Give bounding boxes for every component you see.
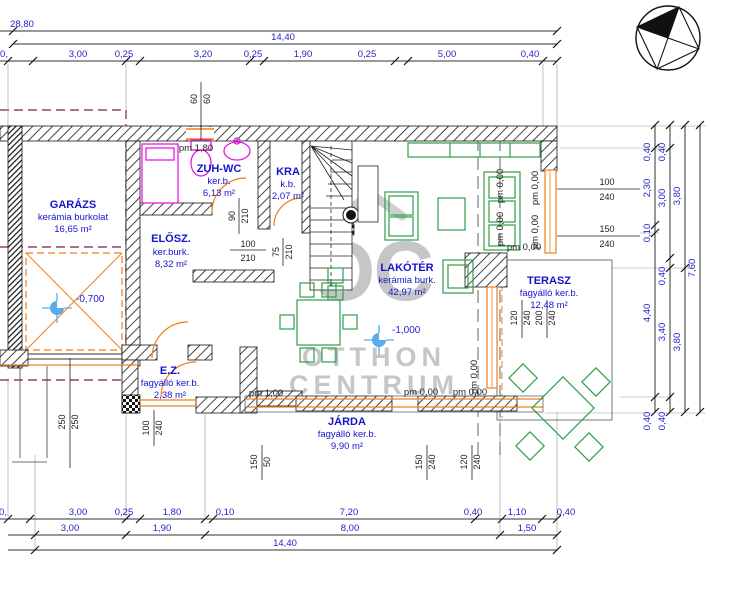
svg-text:42,97 m²: 42,97 m²: [388, 287, 426, 298]
wall-garage-south-left: [0, 350, 28, 366]
svg-text:240: 240: [547, 310, 557, 325]
svg-text:fagyálló ker.b.: fagyálló ker.b.: [318, 429, 377, 440]
svg-text:8,32 m²: 8,32 m²: [155, 259, 187, 270]
svg-text:1,90: 1,90: [153, 523, 172, 534]
room-label-elosz: ELŐSZ. ker.burk. 8,32 m²: [151, 232, 191, 270]
svg-text:0,40: 0,40: [657, 412, 668, 431]
dim-top-row: 0, 3,00 0,25 3,20 0,25 1,90 0,25 5,00 0,…: [0, 49, 539, 60]
room-label-zuhwc: ZUH-WC ker.b. 6,13 m²: [197, 163, 242, 199]
svg-text:60: 60: [202, 94, 212, 104]
svg-text:100: 100: [141, 420, 151, 435]
svg-text:3,80: 3,80: [672, 187, 683, 206]
wall-garage-divider: [126, 141, 140, 353]
wall-bath-east: [258, 141, 270, 229]
svg-text:9,90 m²: 9,90 m²: [331, 441, 363, 452]
svg-text:240: 240: [599, 192, 614, 202]
svg-text:3,00: 3,00: [657, 189, 668, 208]
svg-text:50: 50: [262, 457, 272, 467]
svg-text:12,48 m²: 12,48 m²: [530, 300, 568, 311]
svg-text:pm 0,00: pm 0,00: [469, 360, 480, 394]
svg-text:150: 150: [414, 454, 424, 469]
svg-text:GARÁZS: GARÁZS: [50, 198, 96, 211]
patio-chair: [516, 432, 544, 460]
room-label-ez: E.Z. fagyálló ker.b. 2,38 m²: [141, 365, 200, 401]
wall-bath-south: [140, 203, 212, 215]
room-label-kra: KRA k.b. 2,07 m²: [272, 166, 304, 202]
svg-text:150: 150: [599, 224, 614, 234]
stove-icon: [346, 210, 356, 220]
wall-north: [0, 126, 557, 141]
svg-text:-0,700: -0,700: [76, 294, 105, 305]
svg-text:KRA: KRA: [276, 166, 300, 178]
watermark-otthon: OTTHON: [302, 342, 446, 372]
svg-text:3,80: 3,80: [672, 333, 683, 352]
compass-icon: [636, 6, 700, 70]
sidewalk-slab-1: [296, 396, 392, 411]
wall-entry-south: [196, 397, 240, 413]
dim-top-building: 14,40: [271, 32, 295, 43]
svg-text:120: 120: [509, 310, 519, 325]
svg-text:1,90: 1,90: [294, 49, 313, 60]
wardrobe: [358, 166, 378, 222]
svg-text:pm 0,00: pm 0,00: [495, 212, 506, 246]
patio-chair: [509, 364, 537, 392]
shower-icon: [142, 144, 178, 203]
svg-text:pm 0,00: pm 0,00: [404, 387, 438, 398]
svg-text:0,40: 0,40: [521, 49, 540, 60]
svg-text:5,00: 5,00: [438, 49, 457, 60]
svg-text:0,25: 0,25: [358, 49, 377, 60]
svg-text:LAKÓTÉR: LAKÓTÉR: [380, 261, 433, 274]
svg-text:3,00: 3,00: [69, 49, 88, 60]
svg-text:240: 240: [472, 454, 482, 469]
svg-text:200: 200: [534, 310, 544, 325]
wall-pantry-east: [302, 141, 310, 233]
svg-text:7,20: 7,20: [340, 507, 359, 518]
svg-text:fagyálló ker.b.: fagyálló ker.b.: [141, 378, 200, 389]
kitchen-counter: [408, 143, 540, 157]
svg-text:kerámia burkolat: kerámia burkolat: [38, 212, 109, 223]
window-east-upper: [545, 170, 556, 253]
dim-bottom-row1: 0, 3,00 0,25 1,80 0,10 7,20 0,40 1,10 0,…: [0, 507, 575, 518]
wall-ne-corner: [541, 141, 557, 171]
wall-west-boundary: [8, 126, 22, 368]
svg-text:100: 100: [240, 239, 255, 249]
svg-text:240: 240: [522, 310, 532, 325]
svg-text:240: 240: [599, 239, 614, 249]
sidewalk-slab-2: [418, 396, 517, 411]
pier-entry: [122, 395, 140, 413]
svg-text:2,07 m²: 2,07 m²: [272, 191, 304, 202]
svg-text:90: 90: [227, 211, 237, 221]
svg-text:pm 0,00: pm 0,00: [530, 171, 541, 205]
svg-text:0,40: 0,40: [657, 267, 668, 286]
svg-text:16,65 m²: 16,65 m²: [54, 224, 92, 235]
svg-text:0,40: 0,40: [642, 143, 653, 162]
level-marker-garage: -0,700: [42, 293, 105, 323]
svg-text:2,30: 2,30: [642, 179, 653, 198]
svg-text:0,10: 0,10: [642, 224, 653, 243]
room-label-garazs: GARÁZS kerámia burkolat 16,65 m²: [38, 198, 109, 235]
svg-text:pm 0,00: pm 0,00: [495, 169, 506, 203]
sink-icon: [224, 142, 250, 160]
dim-bottom-row2: 3,00 1,90 8,00 1,50: [61, 523, 537, 534]
svg-text:0,40: 0,40: [464, 507, 483, 518]
svg-text:240: 240: [427, 454, 437, 469]
svg-text:pm 0,00: pm 0,00: [507, 242, 541, 253]
svg-text:0,40: 0,40: [557, 507, 576, 518]
svg-text:1,80: 1,80: [163, 507, 182, 518]
svg-text:210: 210: [240, 253, 255, 263]
svg-text:150: 150: [249, 454, 259, 469]
svg-text:kerámia burk.: kerámia burk.: [378, 275, 436, 286]
svg-text:0,40: 0,40: [657, 143, 668, 162]
svg-text:3,00: 3,00: [69, 507, 88, 518]
garage-door-leaf: [28, 354, 122, 359]
dining-chair: [280, 315, 294, 329]
svg-text:0,25: 0,25: [244, 49, 263, 60]
svg-text:0,10: 0,10: [216, 507, 235, 518]
svg-text:75: 75: [271, 247, 281, 257]
svg-text:120: 120: [459, 454, 469, 469]
wall-hall-living: [193, 270, 274, 282]
parking-space-marker: [26, 253, 122, 350]
dim-bottom-total: 14,40: [273, 538, 297, 549]
door-arc-pantry: [274, 198, 302, 226]
svg-text:250: 250: [70, 414, 80, 429]
svg-text:ker.b.: ker.b.: [207, 176, 230, 187]
svg-text:0,25: 0,25: [115, 49, 134, 60]
room-label-terasz: TERASZ fagyálló ker.b. 12,48 m²: [520, 275, 579, 311]
svg-text:1,50: 1,50: [518, 523, 537, 534]
svg-text:0,40: 0,40: [642, 412, 653, 431]
svg-text:-1,000: -1,000: [392, 325, 421, 336]
svg-text:2,38 m²: 2,38 m²: [154, 390, 186, 401]
svg-text:4,40: 4,40: [642, 304, 653, 323]
svg-text:3,20: 3,20: [194, 49, 213, 60]
wall-hall-south-right: [188, 345, 212, 360]
patio-chair: [582, 368, 610, 396]
floorplan-canvas: OC OTTHON CENTRUM: [0, 0, 742, 597]
patio-chair: [575, 433, 603, 461]
svg-text:0,: 0,: [0, 507, 7, 518]
floorplan-drawing: OC OTTHON CENTRUM: [0, 0, 742, 597]
svg-text:3,40: 3,40: [657, 323, 668, 342]
room-label-jarda: JÁRDA fagyálló ker.b. 9,90 m²: [318, 415, 377, 452]
svg-text:ELŐSZ.: ELŐSZ.: [151, 232, 191, 245]
svg-text:1,10: 1,10: [508, 507, 527, 518]
svg-text:ZUH-WC: ZUH-WC: [197, 163, 242, 175]
svg-text:6,13 m²: 6,13 m²: [203, 188, 235, 199]
svg-text:250: 250: [57, 414, 67, 429]
shower-tray: [146, 148, 174, 160]
svg-text:ker.burk.: ker.burk.: [153, 247, 189, 258]
svg-text:E.Z.: E.Z.: [160, 365, 180, 377]
svg-text:100: 100: [599, 177, 614, 187]
svg-text:210: 210: [284, 244, 294, 259]
coffee-table: [438, 198, 465, 230]
patio-table: [532, 377, 594, 439]
svg-text:3,00: 3,00: [61, 523, 80, 534]
wall-se-corner: [465, 253, 507, 287]
svg-text:k.b.: k.b.: [280, 179, 295, 190]
svg-text:0,25: 0,25: [115, 507, 134, 518]
svg-text:0,: 0,: [0, 49, 8, 60]
svg-text:210: 210: [240, 208, 250, 223]
svg-text:240: 240: [154, 420, 164, 435]
svg-text:TERASZ: TERASZ: [527, 275, 571, 287]
pm-shower: pm 1,80: [179, 143, 213, 154]
pm-walk: pm 1,00: [249, 388, 283, 399]
svg-text:8,00: 8,00: [341, 523, 360, 534]
dim-top-total: 28,80: [10, 19, 34, 30]
svg-text:60: 60: [189, 94, 199, 104]
svg-text:JÁRDA: JÁRDA: [328, 415, 366, 428]
svg-text:7,60: 7,60: [687, 259, 698, 278]
svg-text:fagyálló ker.b.: fagyálló ker.b.: [520, 288, 579, 299]
wall-entry-east: [240, 347, 257, 413]
